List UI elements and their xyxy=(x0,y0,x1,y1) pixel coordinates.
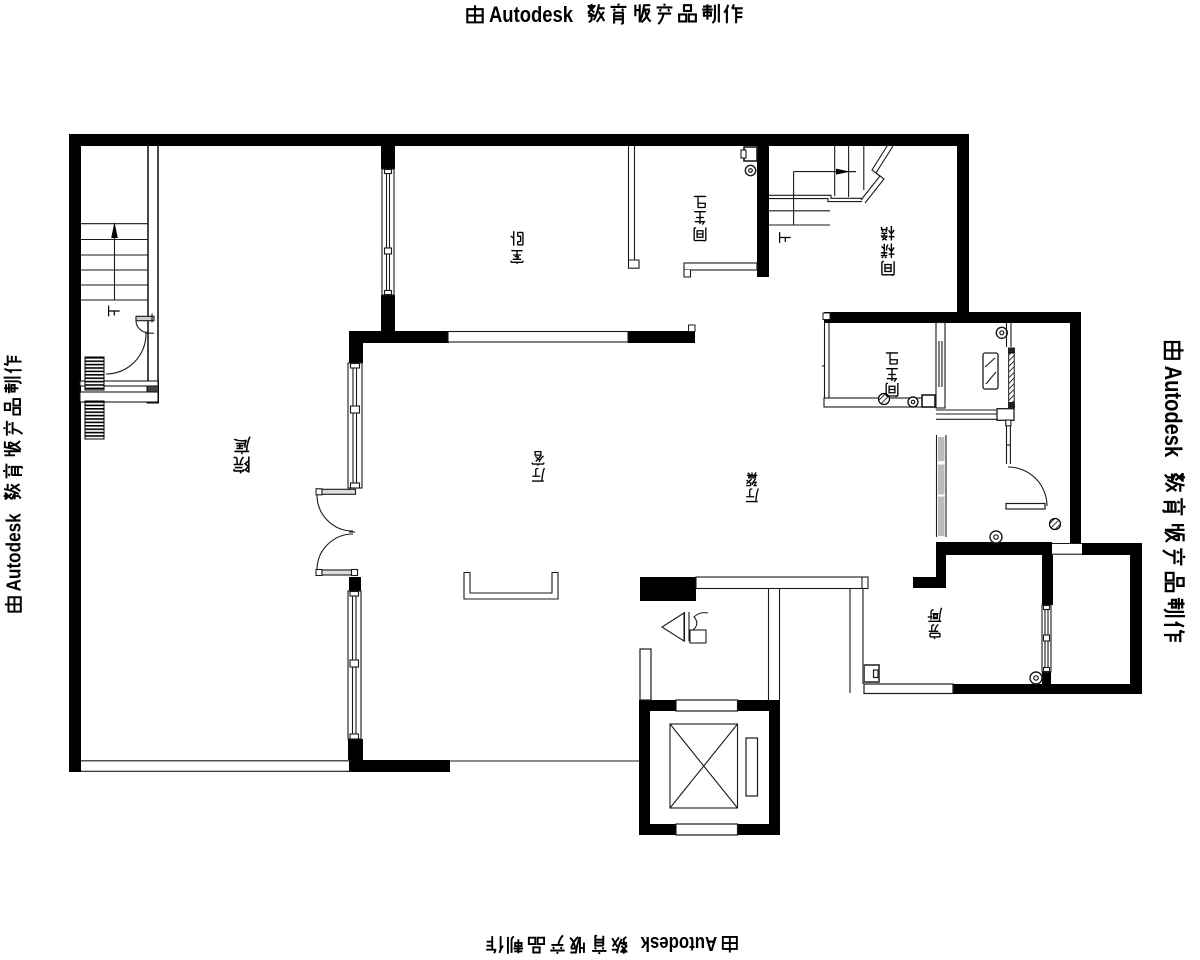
svg-text:Autodesk: Autodesk xyxy=(3,513,26,592)
svg-text:Autodesk: Autodesk xyxy=(489,2,574,27)
svg-text:Autodesk: Autodesk xyxy=(1159,366,1186,458)
svg-text:Autodesk: Autodesk xyxy=(640,932,717,954)
